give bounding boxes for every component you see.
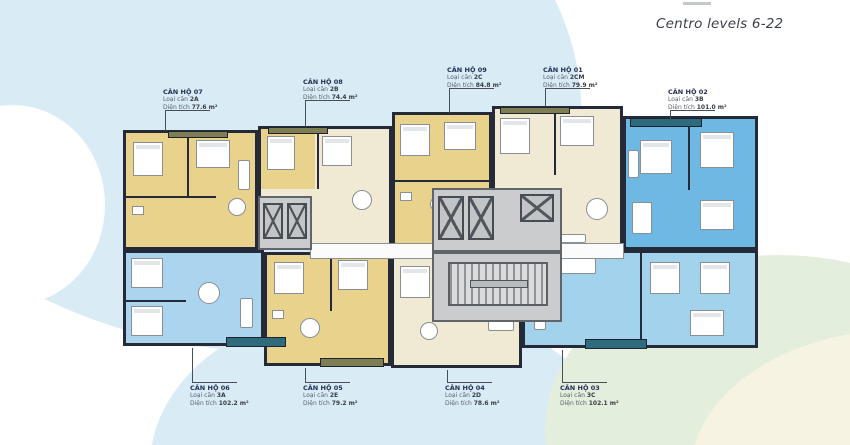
unit-type-line: Loại căn 3C — [560, 392, 619, 400]
partition-wall — [640, 253, 642, 345]
unit-area-value: 78.6 m² — [474, 400, 500, 407]
dining-table-icon — [632, 202, 652, 234]
partition-wall — [317, 129, 319, 189]
toilet-icon — [272, 310, 284, 319]
unit-type-label: Loại căn — [560, 392, 585, 399]
unit-type-label: Loại căn — [447, 74, 472, 81]
corridor — [310, 243, 434, 259]
unit-area-value: 102.2 m² — [219, 400, 249, 407]
bed-icon — [444, 122, 476, 150]
unit-type-value: 2CM — [570, 74, 585, 81]
unit-type-line: Loại căn 2C — [447, 74, 502, 82]
unit-type-line: Loại căn 2D — [445, 392, 500, 400]
bed-icon — [196, 140, 230, 168]
leader-line — [449, 88, 494, 113]
unit-callout-09: CĂN HỘ 09 Loại căn 2C Diện tích 84.8 m² — [447, 66, 502, 90]
leader-line — [192, 348, 237, 383]
unit-id: CĂN HỘ 01 — [543, 66, 598, 74]
bed-icon — [560, 116, 594, 146]
unit-type-line: Loại căn 2A — [163, 96, 218, 104]
unit-id: CĂN HỘ 06 — [190, 384, 249, 392]
unit-area-line: Diện tích 102.2 m² — [190, 400, 249, 408]
bed-icon — [640, 140, 672, 174]
sofa-icon — [628, 150, 639, 178]
unit-callout-02: CĂN HỘ 02 Loại căn 3B Diện tích 101.0 m² — [668, 88, 727, 112]
corridor — [560, 243, 624, 259]
unit-type-value: 3A — [217, 392, 226, 399]
elevator-icon — [468, 196, 494, 240]
bed-icon — [133, 142, 163, 176]
bed-icon — [400, 124, 430, 156]
balcony-strip — [585, 339, 647, 349]
leader-line — [165, 110, 210, 131]
unit-id: CĂN HỘ 08 — [303, 78, 358, 86]
stair-rail — [470, 280, 528, 288]
bed-icon — [131, 258, 163, 288]
unit-type-label: Loại căn — [445, 392, 470, 399]
unit-type-value: 3C — [587, 392, 596, 399]
unit-area-label: Diện tích — [560, 400, 587, 407]
unit-id: CĂN HỘ 03 — [560, 384, 619, 392]
unit-area-line: Diện tích 79.2 m² — [303, 400, 358, 408]
partition-wall — [554, 109, 556, 175]
unit-id: CĂN HỘ 02 — [668, 88, 727, 96]
bed-icon — [700, 262, 730, 294]
table-icon — [300, 318, 320, 338]
bed-icon — [700, 132, 734, 168]
elevator-icon — [287, 203, 307, 239]
partition-wall — [330, 255, 332, 311]
table-icon — [586, 198, 608, 220]
sofa-icon — [238, 160, 250, 190]
unit-type-line: Loại căn 3B — [668, 96, 727, 104]
leader-line — [305, 368, 350, 383]
unit-type-value: 2A — [190, 96, 199, 103]
partition-wall — [126, 300, 186, 302]
unit-area-label: Diện tích — [445, 400, 472, 407]
balcony-strip — [168, 131, 228, 138]
partition-wall — [395, 180, 489, 182]
leader-line — [447, 370, 492, 383]
toilet-icon — [400, 192, 412, 201]
unit-area-value: 79.2 m² — [332, 400, 358, 407]
bed-icon — [322, 136, 352, 166]
bed-icon — [131, 306, 163, 336]
elevator-icon — [263, 203, 283, 239]
unit-callout-04: CĂN HỘ 04 Loại căn 2D Diện tích 78.6 m² — [445, 384, 500, 408]
bed-icon — [650, 262, 680, 294]
unit-type-line: Loại căn 2CM — [543, 74, 598, 82]
dining-table-icon — [560, 258, 596, 274]
unit-callout-03: CĂN HỘ 03 Loại căn 3C Diện tích 102.1 m² — [560, 384, 619, 408]
unit-type-label: Loại căn — [163, 96, 188, 103]
balcony-strip — [268, 127, 328, 134]
sofa-icon — [560, 234, 586, 243]
unit-type-value: 2C — [474, 74, 483, 81]
bed-icon — [690, 310, 724, 336]
decorative-line — [683, 2, 711, 5]
table-icon — [228, 198, 246, 216]
unit-type-label: Loại căn — [303, 392, 328, 399]
toilet-icon — [132, 206, 144, 215]
balcony-strip — [226, 337, 286, 347]
unit-id: CĂN HỘ 05 — [303, 384, 358, 392]
table-icon — [352, 190, 372, 210]
unit-type-value: 2D — [472, 392, 481, 399]
bed-icon — [338, 260, 368, 290]
floorplan-page: Centro levels 6-22 — [0, 0, 850, 445]
table-icon — [198, 282, 220, 304]
bed-icon — [500, 118, 530, 154]
partition-wall — [688, 120, 690, 190]
unit-type-line: Loại căn 3A — [190, 392, 249, 400]
unit-callout-06: CĂN HỘ 06 Loại căn 3A Diện tích 102.2 m² — [190, 384, 249, 408]
elevator-icon — [438, 196, 464, 240]
partition-wall — [187, 133, 189, 197]
unit-callout-08: CĂN HỘ 08 Loại căn 2B Diện tích 74.4 m² — [303, 78, 358, 102]
leader-line — [670, 110, 715, 121]
bed-icon — [700, 200, 734, 230]
bed-icon — [274, 262, 304, 294]
unit-area-line: Diện tích 102.1 m² — [560, 400, 619, 408]
unit-callout-07: CĂN HỘ 07 Loại căn 2A Diện tích 77.6 m² — [163, 88, 218, 112]
unit-type-label: Loại căn — [668, 96, 693, 103]
unit-type-value: 3B — [695, 96, 704, 103]
unit-id: CĂN HỘ 07 — [163, 88, 218, 96]
bed-icon — [267, 136, 295, 170]
unit-area-label: Diện tích — [303, 400, 330, 407]
page-title: Centro levels 6-22 — [656, 16, 783, 32]
unit-id: CĂN HỘ 04 — [445, 384, 500, 392]
unit-area-label: Diện tích — [190, 400, 217, 407]
table-icon — [420, 322, 438, 340]
leader-line — [562, 350, 607, 383]
elevator-icon — [520, 194, 554, 222]
partition-wall — [126, 196, 216, 198]
balcony-strip — [500, 107, 570, 114]
unit-area-value: 102.1 m² — [589, 400, 619, 407]
sofa-icon — [240, 298, 253, 328]
unit-type-label: Loại căn — [543, 74, 568, 81]
unit-id: CĂN HỘ 09 — [447, 66, 502, 74]
leader-line — [545, 88, 590, 107]
unit-area-line: Diện tích 78.6 m² — [445, 400, 500, 408]
unit-type-line: Loại căn 2E — [303, 392, 358, 400]
unit-type-label: Loại căn — [303, 86, 328, 93]
unit-callout-01: CĂN HỘ 01 Loại căn 2CM Diện tích 79.9 m² — [543, 66, 598, 90]
bed-icon — [400, 266, 430, 298]
unit-type-line: Loại căn 2B — [303, 86, 358, 94]
unit-type-value: 2E — [330, 392, 338, 399]
unit-callout-05: CĂN HỘ 05 Loại căn 2E Diện tích 79.2 m² — [303, 384, 358, 408]
balcony-strip — [320, 358, 384, 367]
unit-type-value: 2B — [330, 86, 339, 93]
unit-type-label: Loại căn — [190, 392, 215, 399]
leader-line — [305, 100, 350, 127]
